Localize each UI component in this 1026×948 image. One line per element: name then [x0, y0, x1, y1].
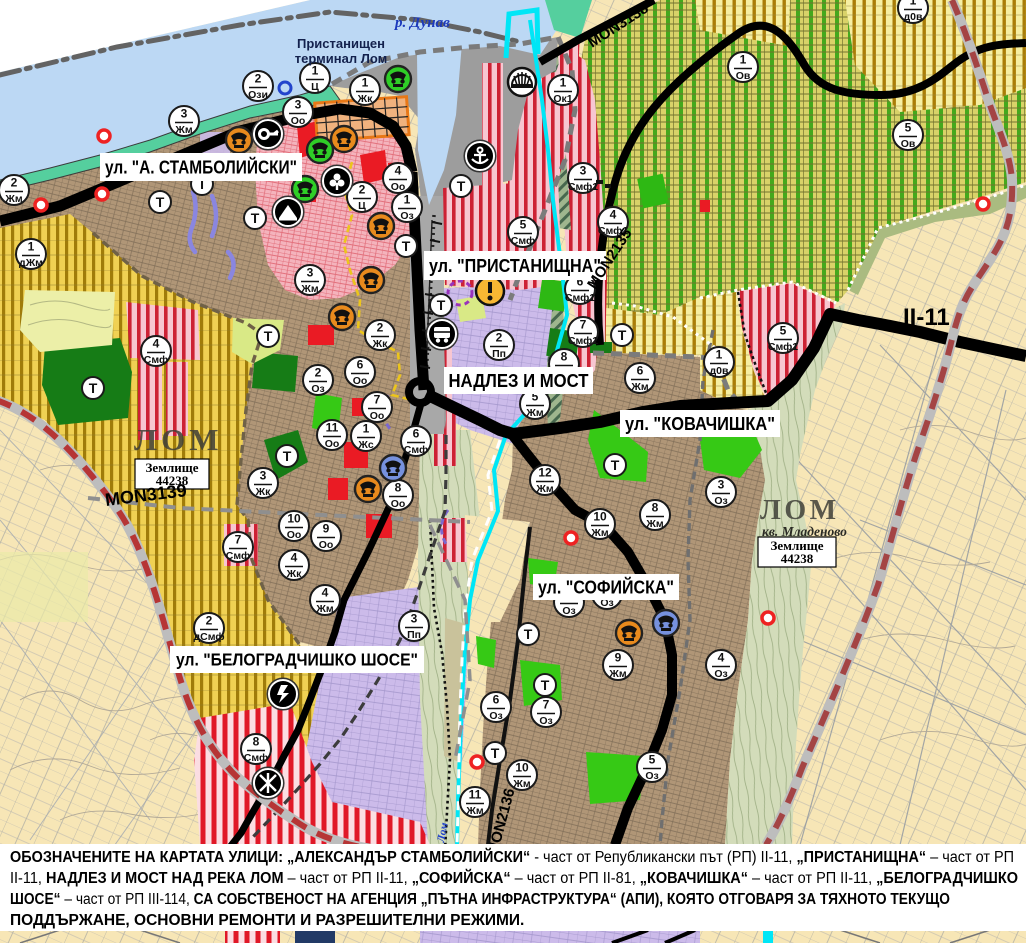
- svg-text:Смф: Смф: [511, 235, 535, 247]
- svg-text:4: 4: [718, 651, 725, 665]
- svg-text:3: 3: [307, 266, 314, 280]
- svg-text:Жк: Жк: [372, 338, 388, 350]
- svg-text:Пп: Пп: [492, 348, 506, 360]
- svg-text:6: 6: [413, 427, 420, 441]
- svg-text:Жк: Жк: [357, 93, 373, 105]
- svg-text:Оз: Оз: [562, 605, 575, 617]
- svg-text:4: 4: [322, 586, 329, 600]
- svg-text:ШОСЕ“ – част от РП III-114, СА: ШОСЕ“ – част от РП III-114, СА СОБСТВЕНО…: [10, 891, 950, 908]
- svg-text:2: 2: [255, 72, 262, 86]
- svg-text:Ц: Ц: [358, 200, 366, 212]
- svg-text:1: 1: [560, 76, 567, 90]
- svg-text:T: T: [491, 745, 500, 761]
- svg-text:дЖм: дЖм: [19, 257, 43, 269]
- svg-text:7: 7: [374, 393, 381, 407]
- svg-text:11: 11: [469, 788, 482, 802]
- svg-text:ул. "ПРИСТАНИЩНА": ул. "ПРИСТАНИЩНА": [429, 256, 601, 276]
- svg-text:Ов: Ов: [736, 70, 751, 82]
- svg-text:1: 1: [404, 193, 411, 207]
- svg-text:Жм: Жм: [525, 407, 543, 419]
- svg-text:4: 4: [153, 337, 160, 351]
- svg-text:T: T: [156, 194, 165, 210]
- svg-text:ул. "А. СТАМБОЛИЙСКИ": ул. "А. СТАМБОЛИЙСКИ": [105, 156, 297, 177]
- svg-text:1: 1: [910, 0, 917, 8]
- svg-text:2: 2: [359, 183, 366, 197]
- svg-text:ПОДДЪРЖАНЕ, ОСНОВНИ РЕМОНТИ И: ПОДДЪРЖАНЕ, ОСНОВНИ РЕМОНТИ И РАЗРЕШИТЕЛ…: [10, 912, 524, 929]
- svg-text:2: 2: [315, 366, 322, 380]
- svg-text:Оз: Оз: [645, 770, 658, 782]
- svg-text:Жм: Жм: [4, 193, 22, 205]
- svg-text:4: 4: [291, 551, 298, 565]
- svg-text:Жм: Жм: [315, 603, 333, 615]
- svg-text:Смф: Смф: [144, 354, 168, 366]
- svg-text:9: 9: [323, 522, 330, 536]
- svg-text:3: 3: [181, 107, 188, 121]
- svg-text:3: 3: [411, 612, 418, 626]
- svg-text:Оз: Оз: [714, 668, 727, 680]
- svg-text:2: 2: [11, 176, 18, 190]
- svg-text:дСмф: дСмф: [193, 631, 224, 643]
- svg-text:3: 3: [580, 164, 587, 178]
- svg-text:5: 5: [780, 324, 787, 338]
- svg-text:Смф: Смф: [244, 752, 268, 764]
- svg-text:T: T: [89, 380, 98, 396]
- svg-text:Смф: Смф: [404, 444, 428, 456]
- svg-text:Ц: Ц: [311, 81, 319, 93]
- svg-text:Оо: Оо: [319, 539, 334, 551]
- svg-text:Жм: Жм: [300, 283, 318, 295]
- svg-text:1: 1: [362, 76, 369, 90]
- svg-text:7: 7: [580, 318, 587, 332]
- svg-text:Смф1: Смф1: [768, 341, 798, 353]
- svg-text:ОБОЗНАЧЕНИТЕ НА КАРТАТА УЛИЦИ:: ОБОЗНАЧЕНИТЕ НА КАРТАТА УЛИЦИ: „АЛЕКСАНД…: [10, 848, 1014, 866]
- svg-text:7: 7: [235, 533, 242, 547]
- svg-text:Ов: Ов: [901, 138, 916, 150]
- svg-text:T: T: [437, 297, 446, 313]
- svg-text:12: 12: [538, 466, 552, 480]
- svg-text:Жк: Жк: [255, 486, 271, 498]
- svg-text:10: 10: [515, 761, 529, 775]
- svg-text:II-11, НАДЛЕЗ И МОСТ НАД РЕКА: II-11, НАДЛЕЗ И МОСТ НАД РЕКА ЛОМ – част…: [10, 869, 1018, 887]
- svg-text:5: 5: [905, 121, 912, 135]
- svg-text:Оо: Оо: [287, 529, 302, 541]
- svg-text:Смф: Смф: [226, 550, 250, 562]
- svg-text:Оз: Оз: [311, 383, 324, 395]
- svg-text:ул. "СОФИЙСКА": ул. "СОФИЙСКА": [538, 576, 674, 597]
- svg-text:Оо: Оо: [391, 498, 406, 510]
- svg-text:8: 8: [561, 350, 568, 364]
- svg-text:T: T: [264, 328, 273, 344]
- svg-text:Оз: Оз: [714, 495, 727, 507]
- svg-text:2: 2: [496, 331, 503, 345]
- svg-text:Смф1: Смф1: [568, 181, 598, 193]
- svg-text:Пп: Пп: [407, 629, 421, 641]
- svg-text:6: 6: [493, 693, 500, 707]
- svg-text:Жс: Жс: [357, 439, 373, 451]
- svg-text:T: T: [457, 178, 466, 194]
- svg-text:2: 2: [377, 321, 384, 335]
- svg-text:Жм: Жм: [590, 527, 608, 539]
- svg-text:ЛОМ: ЛОМ: [134, 422, 222, 457]
- svg-text:7: 7: [543, 698, 550, 712]
- svg-text:Смф1: Смф1: [568, 335, 598, 347]
- svg-text:1: 1: [363, 422, 370, 436]
- svg-text:Жм: Жм: [645, 518, 663, 530]
- svg-text:9: 9: [615, 651, 622, 665]
- svg-text:Пристанищен: Пристанищен: [297, 36, 385, 51]
- svg-text:Оо: Оо: [291, 115, 306, 127]
- svg-text:Оз: Оз: [400, 210, 413, 222]
- svg-text:5: 5: [649, 753, 656, 767]
- svg-text:Жм: Жм: [465, 805, 483, 817]
- svg-text:д0в: д0в: [710, 365, 730, 377]
- svg-text:Жм: Жм: [608, 668, 626, 680]
- svg-text:Жм: Жм: [512, 778, 530, 790]
- svg-text:2: 2: [206, 614, 213, 628]
- svg-text:10: 10: [287, 512, 301, 526]
- svg-text:3: 3: [260, 469, 267, 483]
- svg-text:8: 8: [652, 501, 659, 515]
- svg-text:д0в: д0в: [904, 11, 924, 23]
- svg-text:Ози: Ози: [248, 89, 268, 101]
- svg-text:р. Дунав: р. Дунав: [393, 15, 450, 31]
- svg-text:11: 11: [326, 421, 339, 435]
- svg-text:10: 10: [593, 510, 607, 524]
- svg-text:Оз: Оз: [539, 715, 552, 727]
- svg-text:Оз: Оз: [489, 710, 502, 722]
- svg-text:8: 8: [253, 735, 260, 749]
- svg-text:ул. "БЕЛОГРАДЧИШКО ШОСЕ": ул. "БЕЛОГРАДЧИШКО ШОСЕ": [176, 650, 418, 670]
- svg-text:T: T: [283, 448, 292, 464]
- svg-text:Жм: Жм: [174, 124, 192, 136]
- svg-text:1: 1: [716, 348, 723, 362]
- svg-text:Смф1: Смф1: [565, 292, 595, 304]
- svg-text:T: T: [541, 677, 550, 693]
- svg-text:3: 3: [718, 478, 725, 492]
- svg-text:6: 6: [637, 364, 644, 378]
- svg-text:II-11: II-11: [903, 304, 950, 331]
- svg-text:T: T: [618, 327, 627, 343]
- svg-text:5: 5: [520, 218, 527, 232]
- svg-text:6: 6: [357, 358, 364, 372]
- svg-text:T: T: [402, 238, 411, 254]
- svg-text:4: 4: [395, 164, 402, 178]
- svg-text:T: T: [524, 626, 533, 642]
- svg-text:1: 1: [740, 53, 747, 67]
- svg-text:4: 4: [610, 208, 617, 222]
- svg-text:3: 3: [295, 98, 302, 112]
- svg-text:Ок1: Ок1: [553, 93, 572, 105]
- svg-text:Оо: Оо: [353, 375, 368, 387]
- svg-text:1: 1: [28, 240, 35, 254]
- svg-text:Жк: Жк: [286, 568, 302, 580]
- svg-text:Жм: Жм: [630, 381, 648, 393]
- svg-text:44238: 44238: [781, 551, 814, 566]
- svg-text:Оо: Оо: [391, 181, 406, 193]
- svg-text:T: T: [611, 457, 620, 473]
- svg-text:НАДЛЕЗ И МОСТ: НАДЛЕЗ И МОСТ: [449, 371, 589, 391]
- svg-text:ЛОМ: ЛОМ: [760, 495, 840, 526]
- svg-text:8: 8: [395, 481, 402, 495]
- svg-text:Оо: Оо: [370, 410, 385, 422]
- svg-text:Жм: Жм: [535, 483, 553, 495]
- svg-text:Оо: Оо: [325, 438, 340, 450]
- svg-text:терминал Лом: терминал Лом: [295, 51, 387, 66]
- svg-text:T: T: [251, 210, 260, 226]
- svg-text:ул. "КОВАЧИШКА": ул. "КОВАЧИШКА": [625, 414, 775, 434]
